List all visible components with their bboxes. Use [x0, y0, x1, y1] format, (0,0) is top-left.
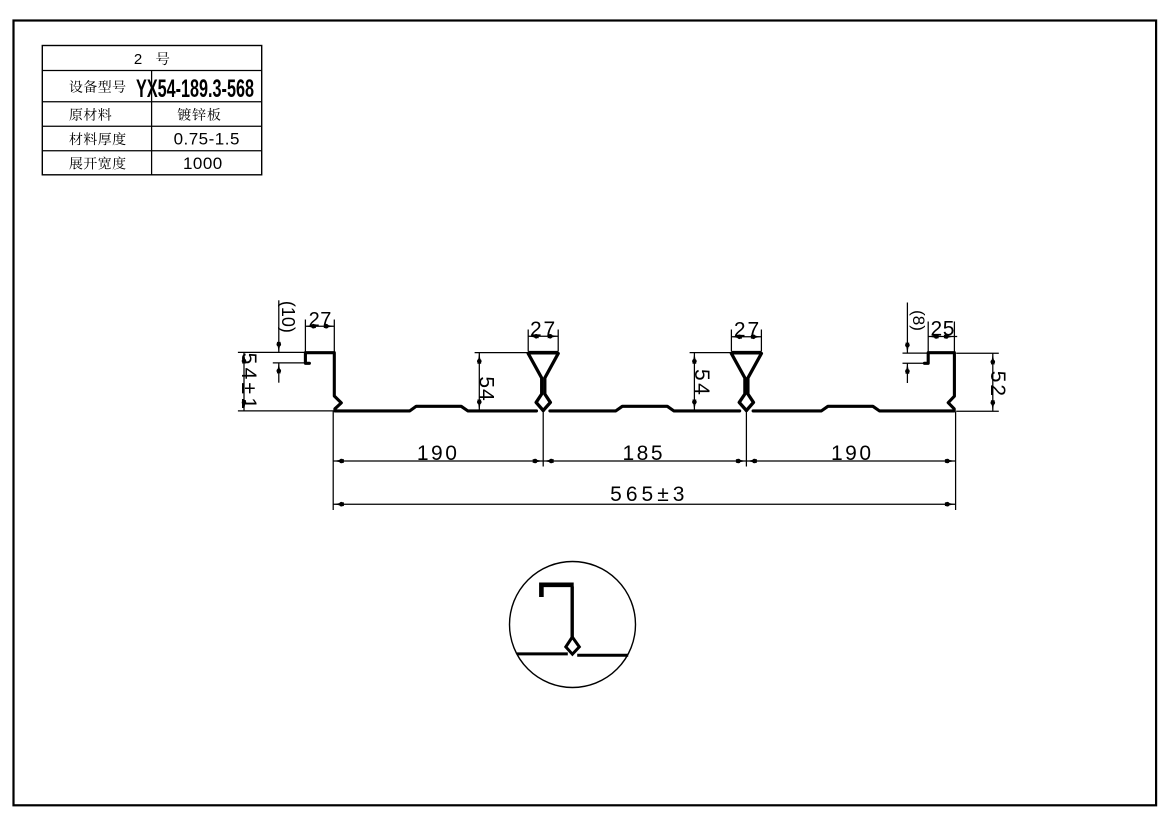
svg-text:1000: 1000 [183, 154, 222, 173]
svg-text:185: 185 [622, 442, 662, 465]
svg-text:54: 54 [475, 376, 498, 401]
svg-text:54: 54 [690, 369, 713, 395]
svg-text:(8): (8) [909, 310, 928, 331]
svg-text:(10): (10) [278, 301, 298, 333]
svg-text:54±1: 54±1 [237, 353, 260, 409]
svg-text:25: 25 [931, 318, 955, 341]
svg-text:190: 190 [417, 442, 457, 465]
svg-text:190: 190 [831, 442, 871, 465]
svg-text:YX54-189.3-568: YX54-189.3-568 [136, 76, 254, 103]
svg-text:52: 52 [986, 371, 1009, 396]
svg-text:2: 2 [134, 51, 142, 68]
svg-text:565±3: 565±3 [610, 483, 684, 506]
svg-text:27: 27 [734, 318, 759, 341]
svg-text:0.75-1.5: 0.75-1.5 [174, 130, 240, 149]
svg-text:27: 27 [530, 318, 555, 341]
svg-text:27: 27 [309, 309, 332, 331]
